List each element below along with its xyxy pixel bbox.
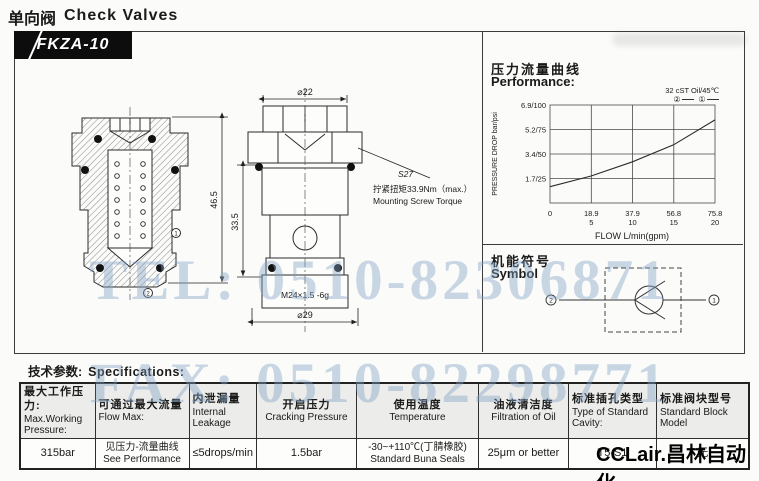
specs-heading-en: Specifications: [88, 365, 184, 379]
datasheet-page: 单向阀 Check Valves FKZA-10 [0, 0, 759, 481]
model-badge: FKZA-10 [14, 31, 132, 59]
value-temperature: -30~+110℃(丁腈橡胶)Standard Buna Seals [356, 439, 478, 470]
value-internal-leakage: ≤5drops/min [189, 439, 256, 470]
page-title-en: Check Valves [64, 7, 178, 25]
vertical-divider [482, 31, 483, 352]
model-number: FKZA-10 [37, 36, 110, 54]
col-max-working-pressure: 最大工作压力:Max.Working Pressure: [20, 383, 95, 439]
specs-heading-zh: 技术参数: [28, 365, 82, 379]
scan-artifact [612, 33, 747, 46]
col-filtration: 油液清洁度Filtration of Oil [478, 383, 568, 439]
col-cavity-type: 标准插孔类型Type of Standard Cavity: [568, 383, 656, 439]
value-max-working-pressure: 315bar [20, 439, 95, 470]
col-temperature: 使用温度Temperature [356, 383, 478, 439]
col-cracking-pressure: 开启压力Cracking Pressure [256, 383, 356, 439]
col-block-model: 标准阀块型号Standard Block Model [656, 383, 749, 439]
page-title-zh: 单向阀 [8, 5, 56, 29]
horizontal-divider [482, 244, 743, 245]
col-flow-max: 可通过最大流量Flow Max: [95, 383, 189, 439]
content-frame [14, 31, 745, 354]
specs-heading: 技术参数:Specifications: [28, 361, 185, 380]
value-flow-max: 见压力-流量曲线See Performance [95, 439, 189, 470]
value-filtration: 25μm or better [478, 439, 568, 470]
col-internal-leakage: 内泄漏量Internal Leakage [189, 383, 256, 439]
value-cracking-pressure: 1.5bar [256, 439, 356, 470]
table-header-row: 最大工作压力:Max.Working Pressure: 可通过最大流量Flow… [20, 383, 749, 439]
vendor-logo: CCLair.昌林自动化 [594, 438, 759, 481]
